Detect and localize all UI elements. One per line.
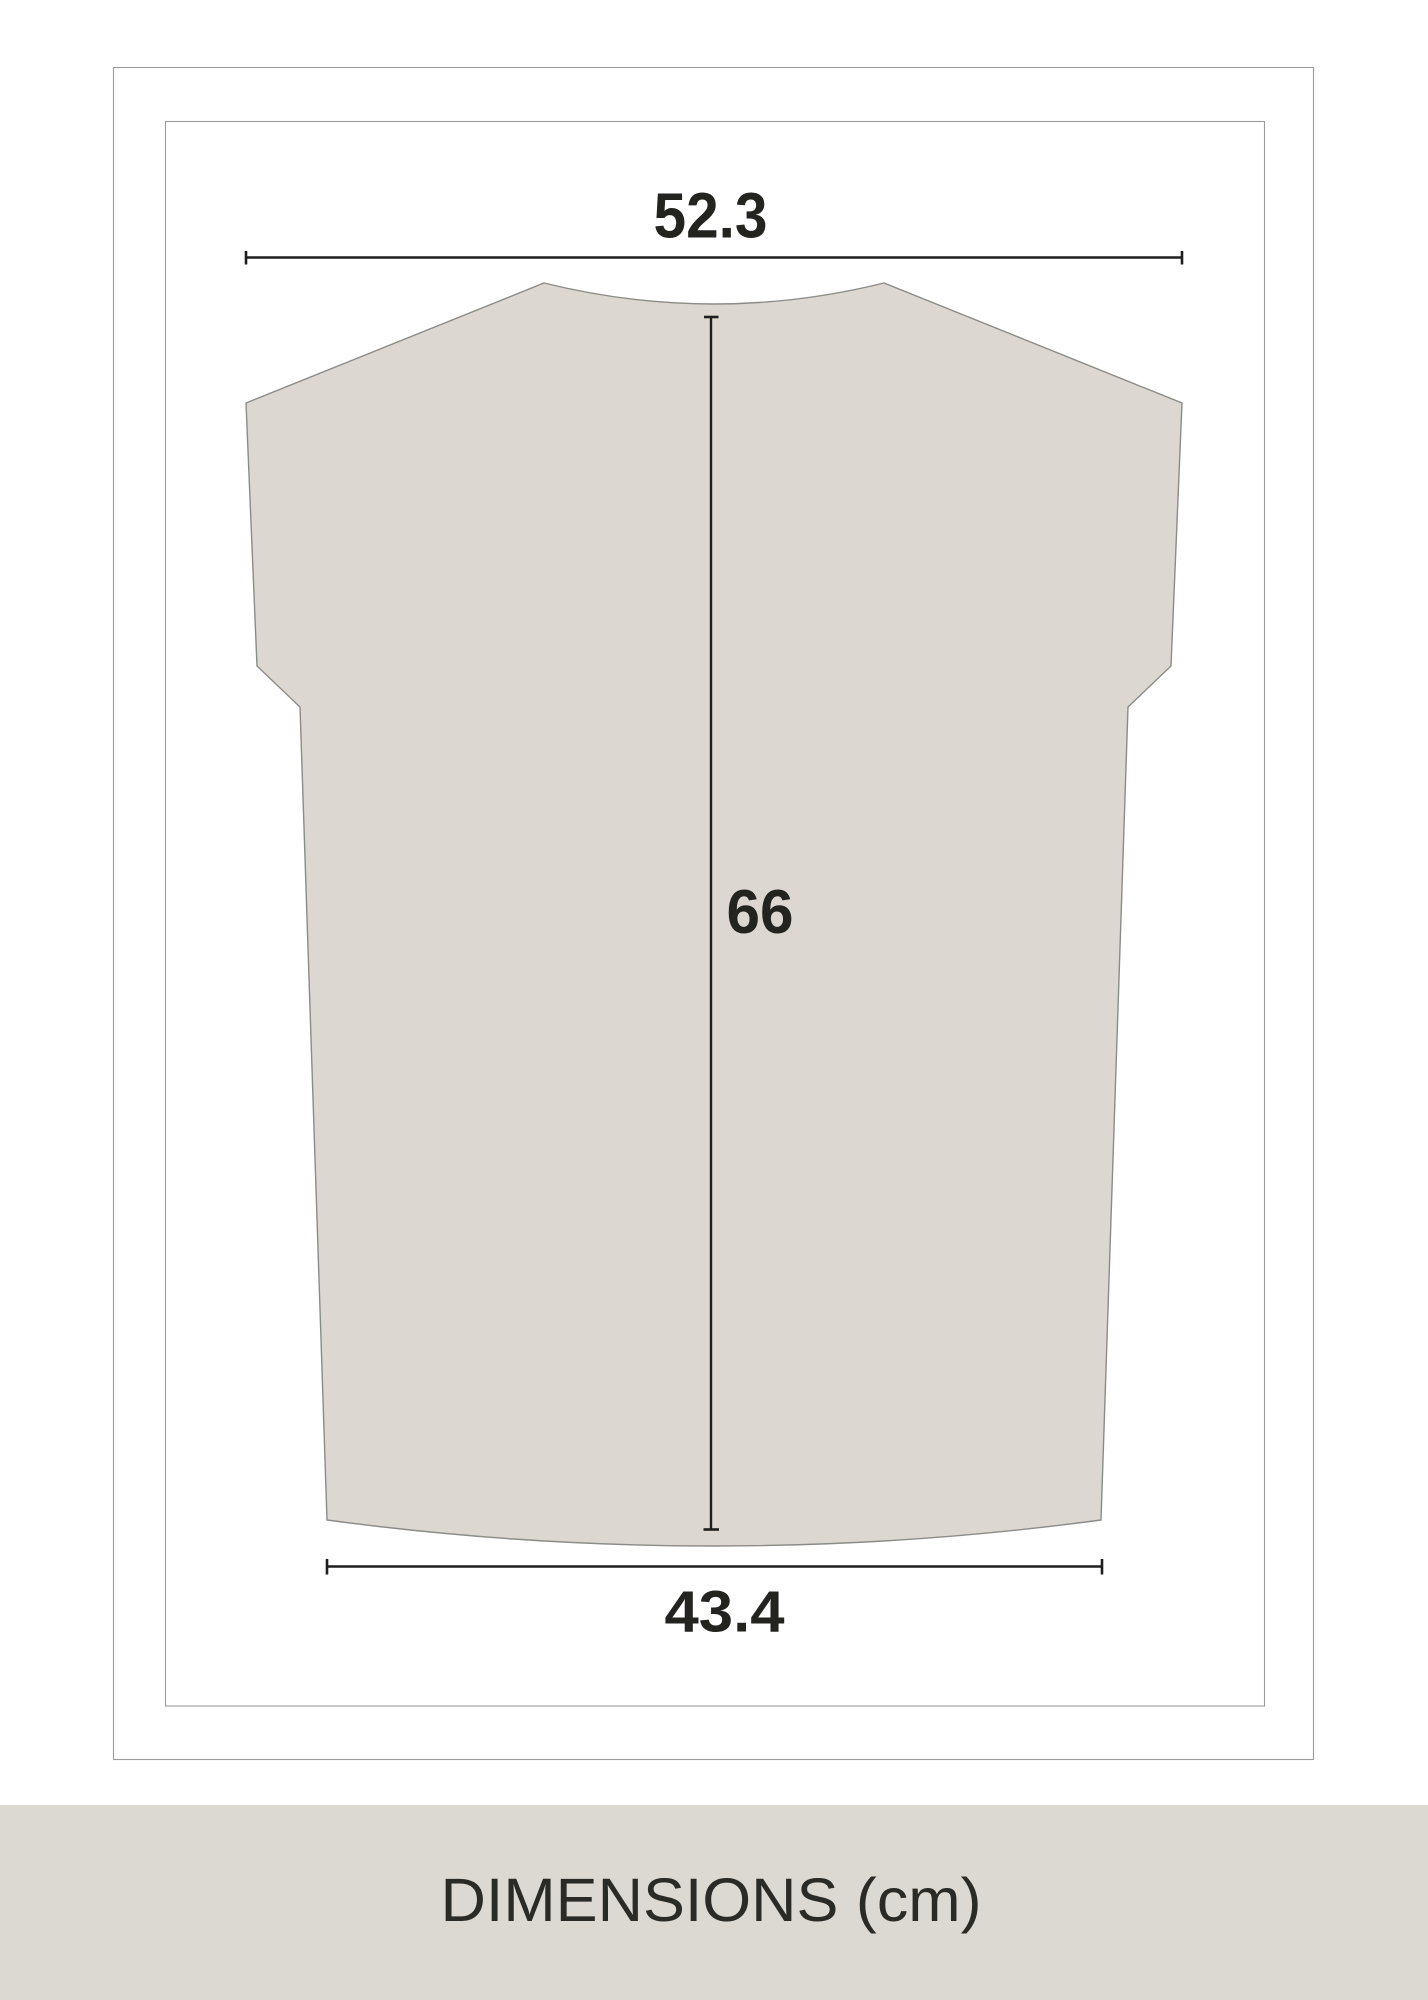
svg-text:66: 66 [727,878,794,947]
svg-text:52.3: 52.3 [654,180,768,252]
svg-text:43.4: 43.4 [665,1580,785,1645]
svg-text:DIMENSIONS (cm): DIMENSIONS (cm) [441,1866,982,1934]
